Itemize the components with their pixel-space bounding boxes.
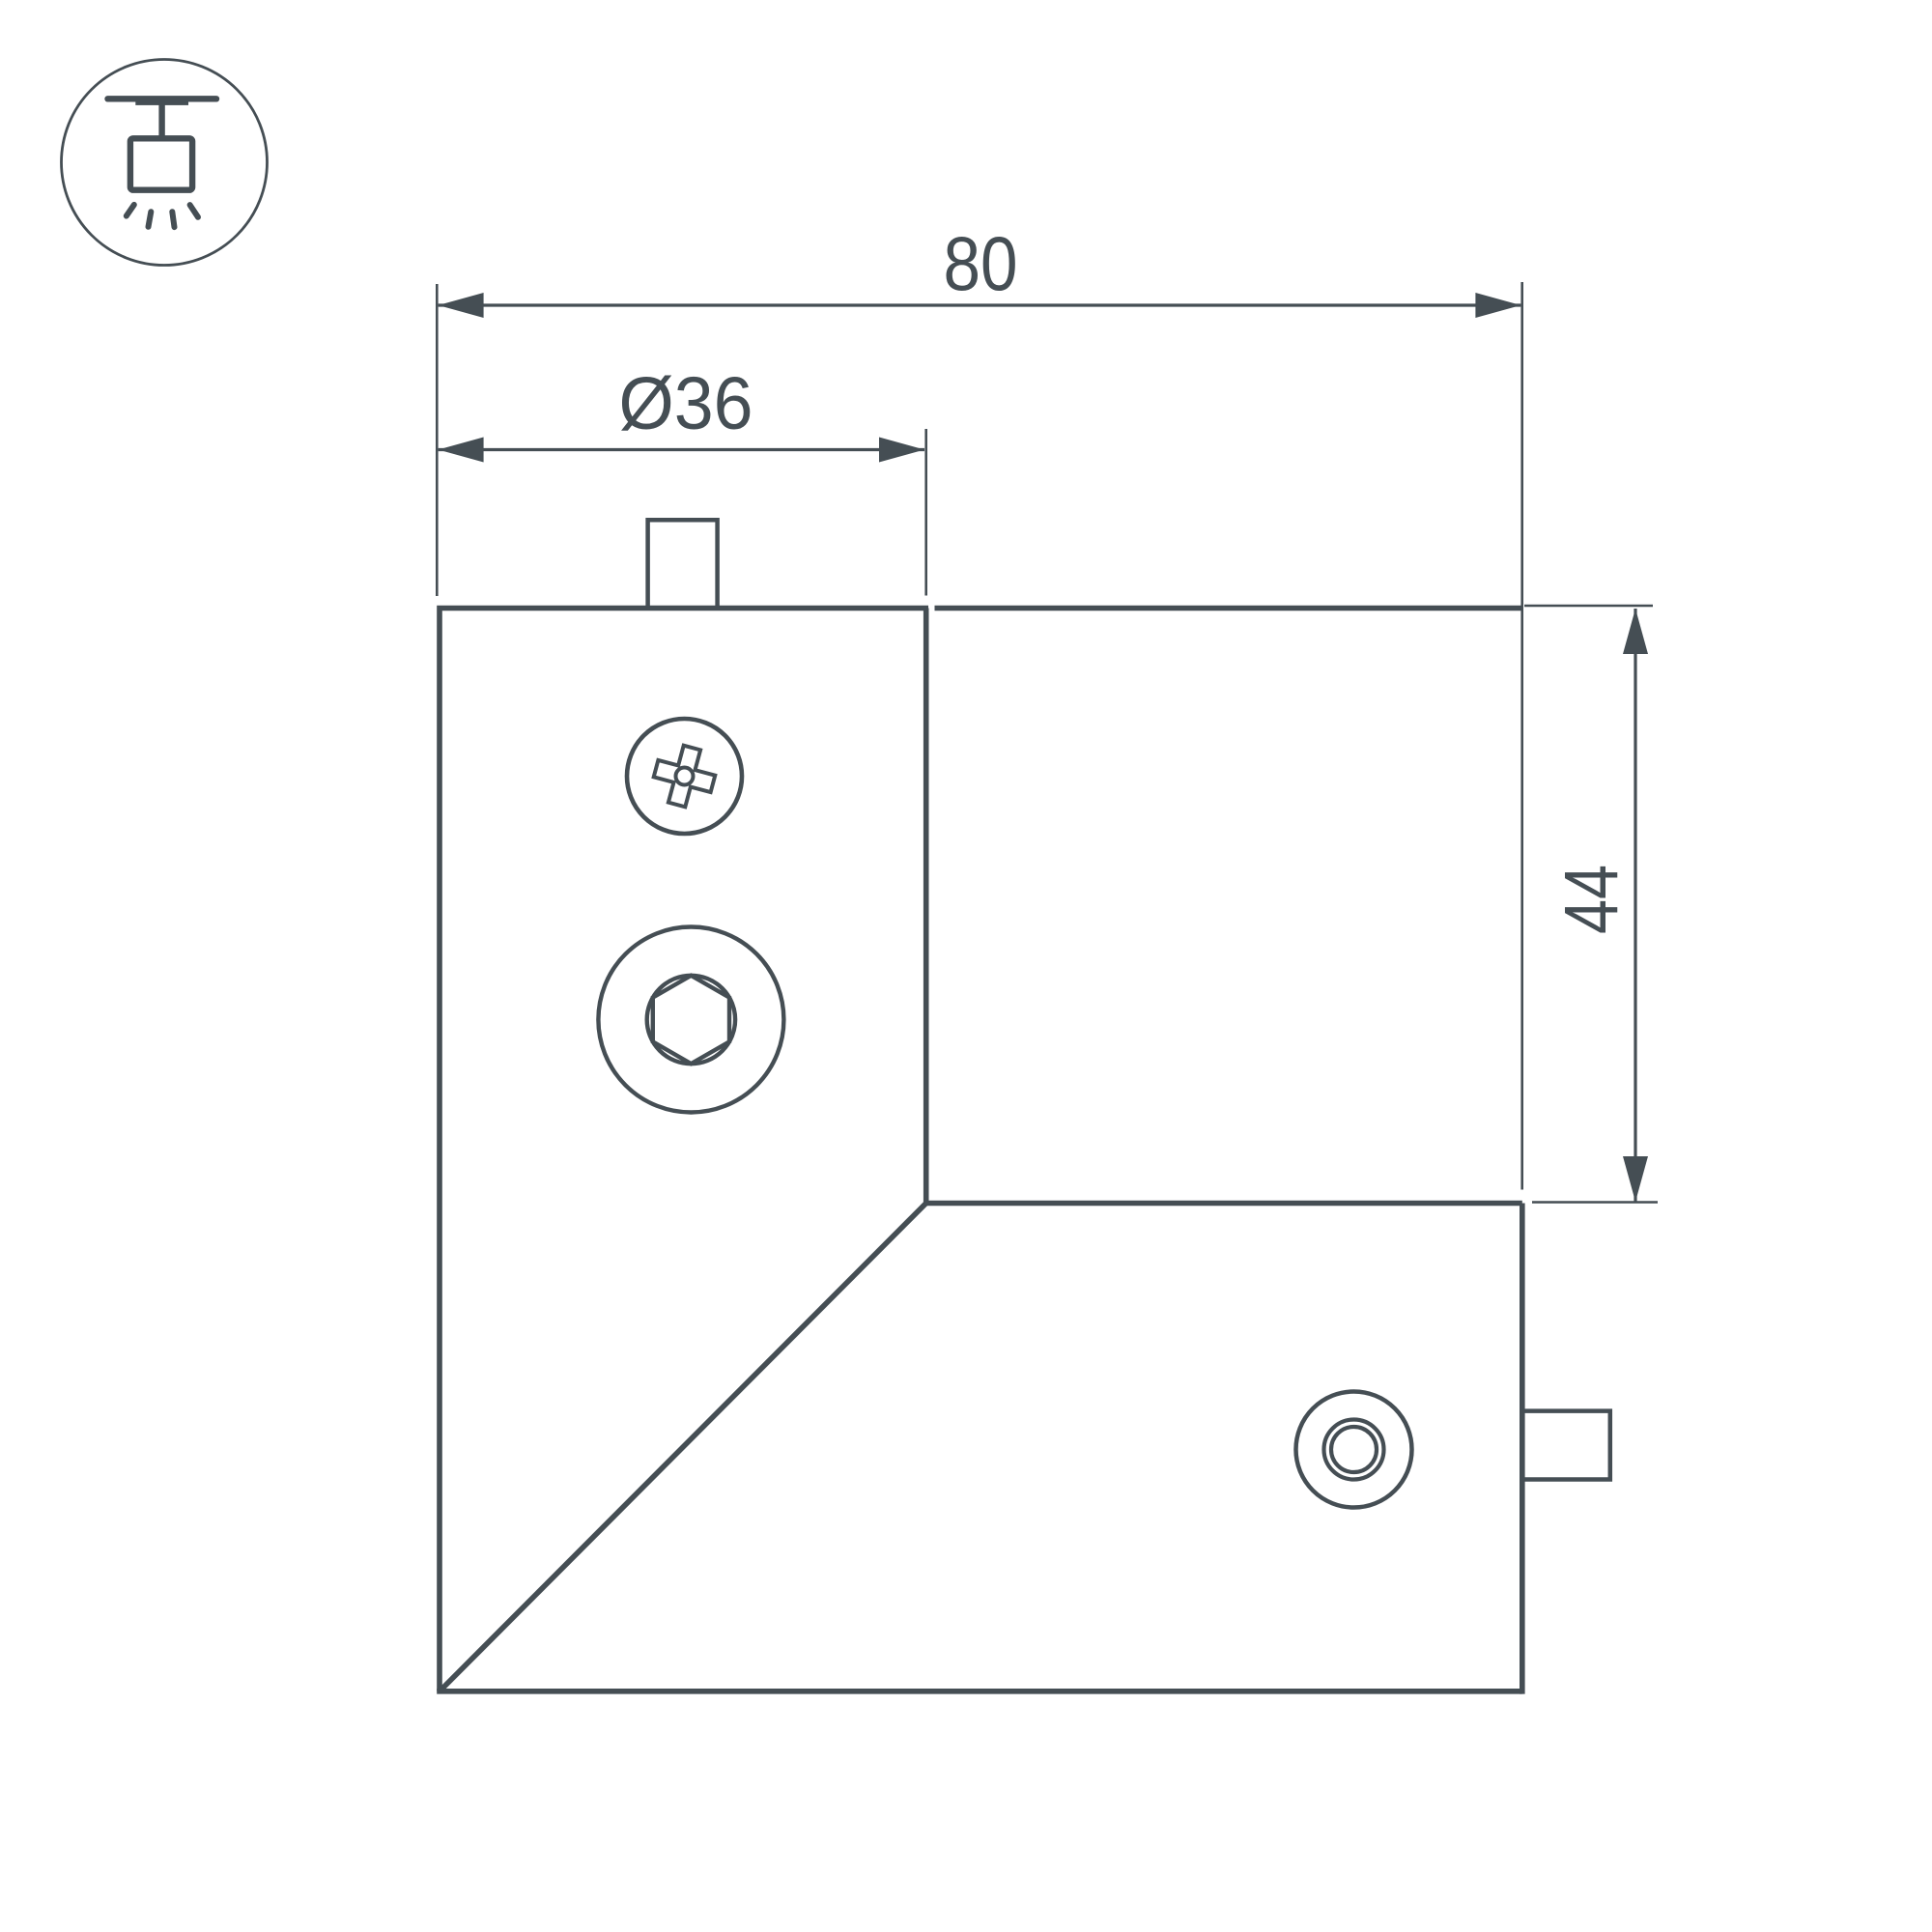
svg-text:Ø36: Ø36 — [619, 362, 753, 445]
svg-text:80: 80 — [944, 220, 1018, 306]
svg-text:44: 44 — [1548, 865, 1634, 934]
